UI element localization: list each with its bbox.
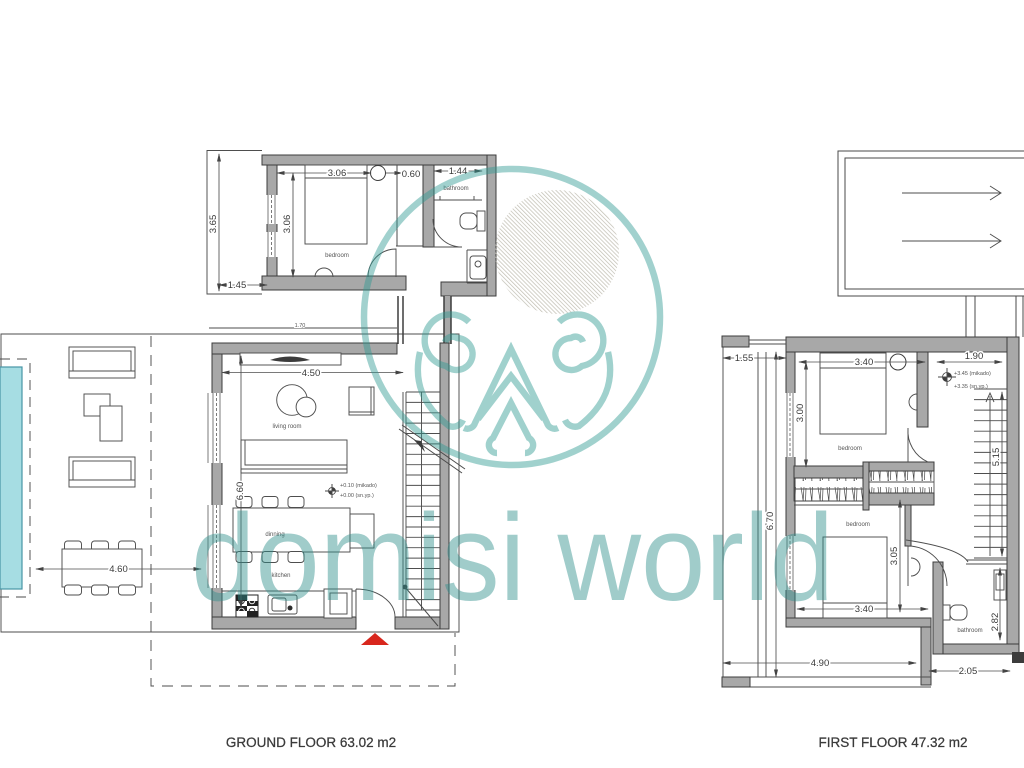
svg-text:2.05: 2.05 — [959, 666, 978, 677]
svg-text:4.90: 4.90 — [811, 658, 830, 669]
svg-text:GROUND FLOOR 63.02 m2: GROUND FLOOR 63.02 m2 — [226, 735, 396, 750]
svg-text:+3.45 (mikado): +3.45 (mikado) — [954, 371, 991, 377]
svg-text:3.00: 3.00 — [795, 404, 806, 423]
svg-text:living room: living room — [272, 424, 301, 430]
svg-text:1.90: 1.90 — [965, 351, 984, 362]
svg-text:5.15: 5.15 — [991, 448, 1002, 467]
svg-text:0.60: 0.60 — [402, 169, 421, 180]
svg-text:+0.10 (mikado): +0.10 (mikado) — [340, 483, 377, 489]
svg-text:3.06: 3.06 — [282, 215, 293, 234]
svg-text:3.40: 3.40 — [855, 357, 874, 368]
svg-text:1.55: 1.55 — [735, 353, 754, 364]
svg-text:1.70: 1.70 — [295, 323, 306, 329]
svg-text:bedroom: bedroom — [838, 446, 862, 452]
svg-text:3.05: 3.05 — [889, 547, 900, 566]
svg-text:1.45: 1.45 — [228, 280, 247, 291]
svg-text:bedroom: bedroom — [846, 522, 870, 528]
svg-text:FIRST FLOOR 47.32 m2: FIRST FLOOR 47.32 m2 — [818, 735, 967, 750]
svg-text:4.60: 4.60 — [109, 564, 128, 575]
svg-text:+3.35 (sn.yp.): +3.35 (sn.yp.) — [954, 384, 988, 390]
svg-text:bedroom: bedroom — [325, 253, 349, 259]
svg-text:4.50: 4.50 — [302, 368, 321, 379]
svg-text:domisi world: domisi world — [191, 490, 834, 627]
svg-text:3.65: 3.65 — [208, 215, 219, 234]
svg-text:3.06: 3.06 — [328, 168, 347, 179]
svg-text:3.40: 3.40 — [855, 604, 874, 615]
svg-text:2.82: 2.82 — [990, 613, 1001, 632]
svg-text:bathroom: bathroom — [957, 628, 982, 634]
